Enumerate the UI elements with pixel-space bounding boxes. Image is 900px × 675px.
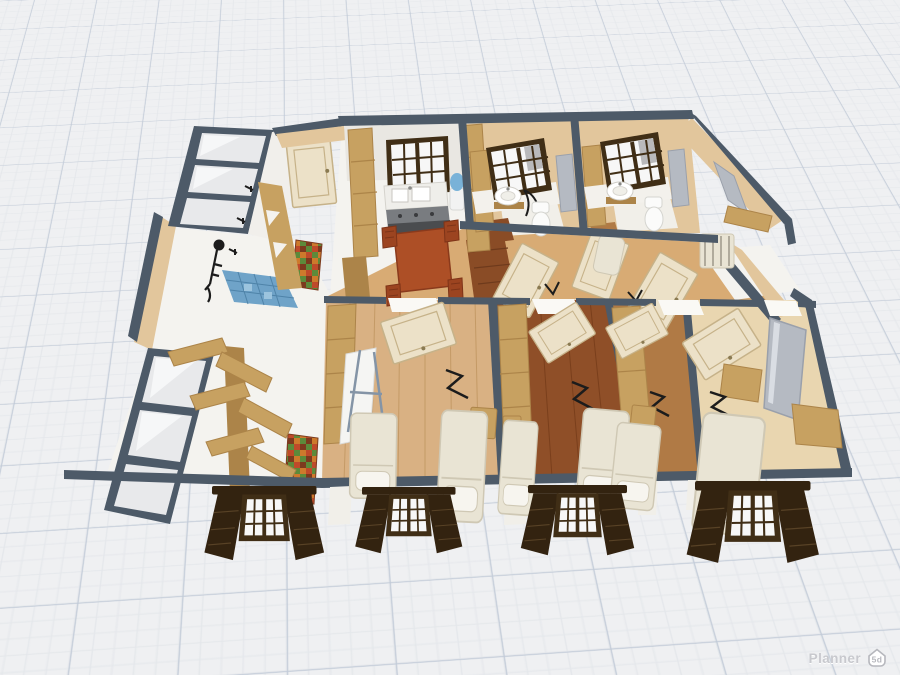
- shuttered-window-1[interactable]: [204, 486, 324, 560]
- watermark-text: Planner: [809, 651, 861, 666]
- mosaic-highlight: [244, 284, 252, 291]
- bedroom-top-wall-5: [798, 300, 816, 308]
- floor-plan-scene[interactable]: [0, 0, 900, 675]
- bedroom-top-wall-3: [576, 298, 656, 306]
- bedroom-top-wall-4: [700, 299, 762, 307]
- bedroom-top-wall-2: [438, 297, 530, 305]
- bedroom1-bed[interactable]: [350, 413, 397, 499]
- bedroom-top-wall-1: [324, 296, 386, 304]
- sink-counter[interactable]: [384, 182, 448, 210]
- dining-table[interactable]: [394, 228, 452, 292]
- shuttered-window-3[interactable]: [521, 485, 634, 555]
- water-cooler[interactable]: [450, 173, 464, 210]
- watermark-badge-text: 5d: [872, 655, 883, 665]
- planner5d-logo-icon: 5d: [865, 648, 889, 668]
- shuttered-window-2[interactable]: [355, 487, 462, 553]
- entry-door[interactable]: [286, 137, 337, 207]
- mosaic-highlight-2: [264, 292, 272, 299]
- planner5d-watermark: Planner 5d: [809, 648, 889, 668]
- right-wall-stub: [784, 219, 796, 245]
- planner5d-3d-viewport[interactable]: Planner 5d: [0, 0, 900, 675]
- bath2-toilet[interactable]: [645, 197, 663, 231]
- bedroom4-cabinet[interactable]: [792, 404, 842, 448]
- shuttered-window-4[interactable]: [687, 481, 819, 563]
